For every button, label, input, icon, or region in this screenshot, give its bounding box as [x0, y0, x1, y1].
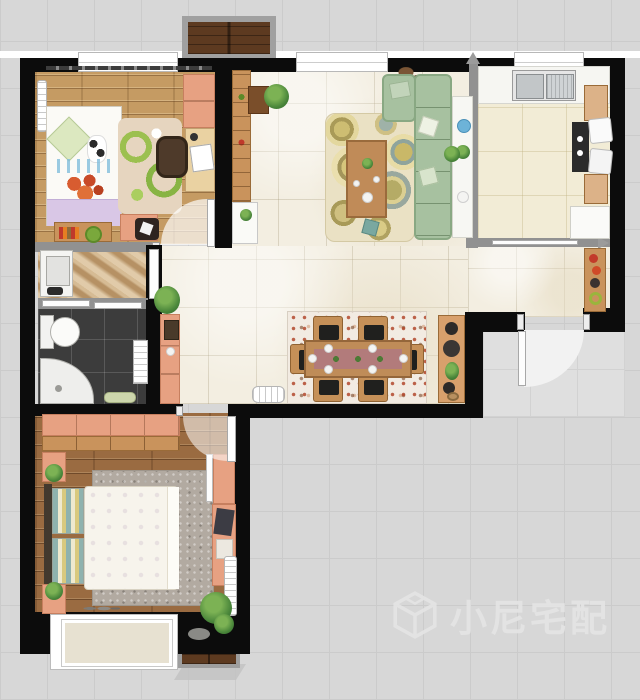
black-chair	[135, 218, 159, 240]
door-jamb	[517, 314, 524, 330]
striped-pillow	[52, 538, 84, 584]
door-jamb	[583, 314, 590, 330]
coffee-table	[346, 140, 387, 218]
breakfast-chair	[588, 148, 613, 175]
cup	[373, 176, 380, 183]
sink-basin	[516, 74, 544, 99]
floor-plant-small	[444, 146, 460, 162]
toilet-bowl	[50, 317, 80, 347]
dark-pillow	[213, 508, 234, 536]
sideboard	[438, 315, 465, 403]
sink-basin	[546, 74, 574, 99]
red-flower	[592, 266, 601, 275]
dining-chair	[313, 376, 343, 402]
desk-chair	[156, 136, 188, 178]
bedroom1-door	[207, 199, 215, 247]
dining-chair	[358, 376, 388, 402]
black-bowl	[443, 340, 460, 357]
deco-plate	[166, 347, 175, 356]
kitchen-cabinet-white	[570, 206, 610, 239]
floor-plan-canvas: 小尼宅配	[0, 0, 640, 700]
sliding-arrow-up-icon	[466, 52, 480, 64]
place-setting	[324, 344, 333, 353]
place-setting	[324, 365, 333, 374]
dining-table	[304, 340, 412, 378]
entry-display-shelf	[584, 248, 606, 312]
wardrobe-bedroom1	[183, 74, 215, 128]
washer-door	[46, 256, 70, 286]
radiator-bench	[252, 386, 285, 403]
wall-right	[610, 58, 625, 332]
single-bed	[46, 106, 122, 226]
kitchen-cabinet-lower	[584, 174, 608, 204]
base-cabinet-white	[232, 202, 258, 244]
vanity-mirror	[206, 454, 213, 502]
shower-drain	[55, 385, 62, 392]
dining-chair	[358, 316, 388, 342]
large-plant-leaf	[214, 614, 234, 634]
kitchen-cabinet-upper	[584, 85, 608, 121]
decor-stones	[80, 602, 120, 615]
dresser-bedroom1	[54, 222, 112, 242]
washing-machine	[40, 250, 73, 297]
bathroom-sliding-panel-2	[94, 302, 142, 309]
kitchen-sliding-panel	[492, 240, 578, 245]
place-setting	[368, 365, 377, 374]
desk-lamp	[190, 133, 198, 141]
nightstand-plant	[45, 464, 63, 482]
small-plant	[240, 209, 252, 221]
watermark: 小尼宅配	[390, 588, 610, 642]
green-decor	[589, 292, 602, 305]
master-wardrobe	[42, 414, 180, 436]
door-jamb	[176, 406, 183, 416]
black-bowl	[445, 322, 458, 335]
bay-window-sill	[62, 620, 172, 666]
sofa-pillow	[389, 80, 411, 99]
red-flower	[589, 254, 598, 263]
books	[59, 227, 79, 239]
cooktop	[572, 122, 589, 172]
console-table	[452, 96, 473, 238]
entry-door	[518, 331, 526, 386]
double-basin-sink	[512, 70, 576, 101]
blue-cup	[457, 119, 471, 133]
dark-pot	[590, 278, 600, 288]
bay-window	[50, 614, 178, 670]
burner	[577, 136, 583, 142]
towel-shelf	[133, 340, 148, 384]
teapot	[362, 192, 373, 203]
headboard	[44, 484, 52, 590]
dining-chair	[313, 316, 343, 342]
floral-duvet	[84, 486, 178, 590]
place-setting	[368, 344, 377, 353]
cup	[353, 180, 360, 187]
hall-cabinet	[160, 314, 180, 404]
decor-rock	[188, 628, 210, 640]
breakfast-chair	[588, 117, 613, 144]
wall-entry-top	[465, 312, 525, 332]
coaster	[447, 392, 459, 401]
top-balcony	[182, 16, 276, 60]
wall-left	[20, 58, 35, 654]
dark-item	[47, 287, 63, 295]
nightstand-plant	[45, 582, 63, 600]
watermark-text: 小尼宅配	[450, 588, 610, 642]
hallway-plant	[154, 286, 180, 314]
place-setting	[399, 354, 408, 363]
duvet-fold	[167, 487, 179, 589]
cube-logo-icon	[390, 590, 440, 640]
bathroom-sliding-panel-1	[42, 300, 90, 307]
wall-hall-bottom	[228, 404, 483, 418]
kettle	[457, 191, 469, 203]
curtain-rail	[46, 66, 212, 70]
wall-bedroom1-right	[215, 58, 232, 248]
sideboard-plant	[445, 362, 459, 380]
master-door	[227, 416, 236, 462]
window-living	[296, 52, 388, 72]
desk	[185, 128, 215, 192]
table-plant	[362, 158, 373, 169]
monitor	[189, 144, 214, 173]
paper	[139, 221, 153, 235]
striped-pillow	[52, 488, 84, 534]
place-setting	[308, 354, 317, 363]
bush-plant	[264, 84, 289, 109]
bath-mat	[104, 392, 136, 403]
round-box	[85, 226, 102, 243]
picture-frame	[164, 320, 179, 340]
diamond-pillow	[46, 116, 91, 161]
master-wardrobe-front	[42, 436, 180, 451]
burner	[577, 150, 583, 156]
